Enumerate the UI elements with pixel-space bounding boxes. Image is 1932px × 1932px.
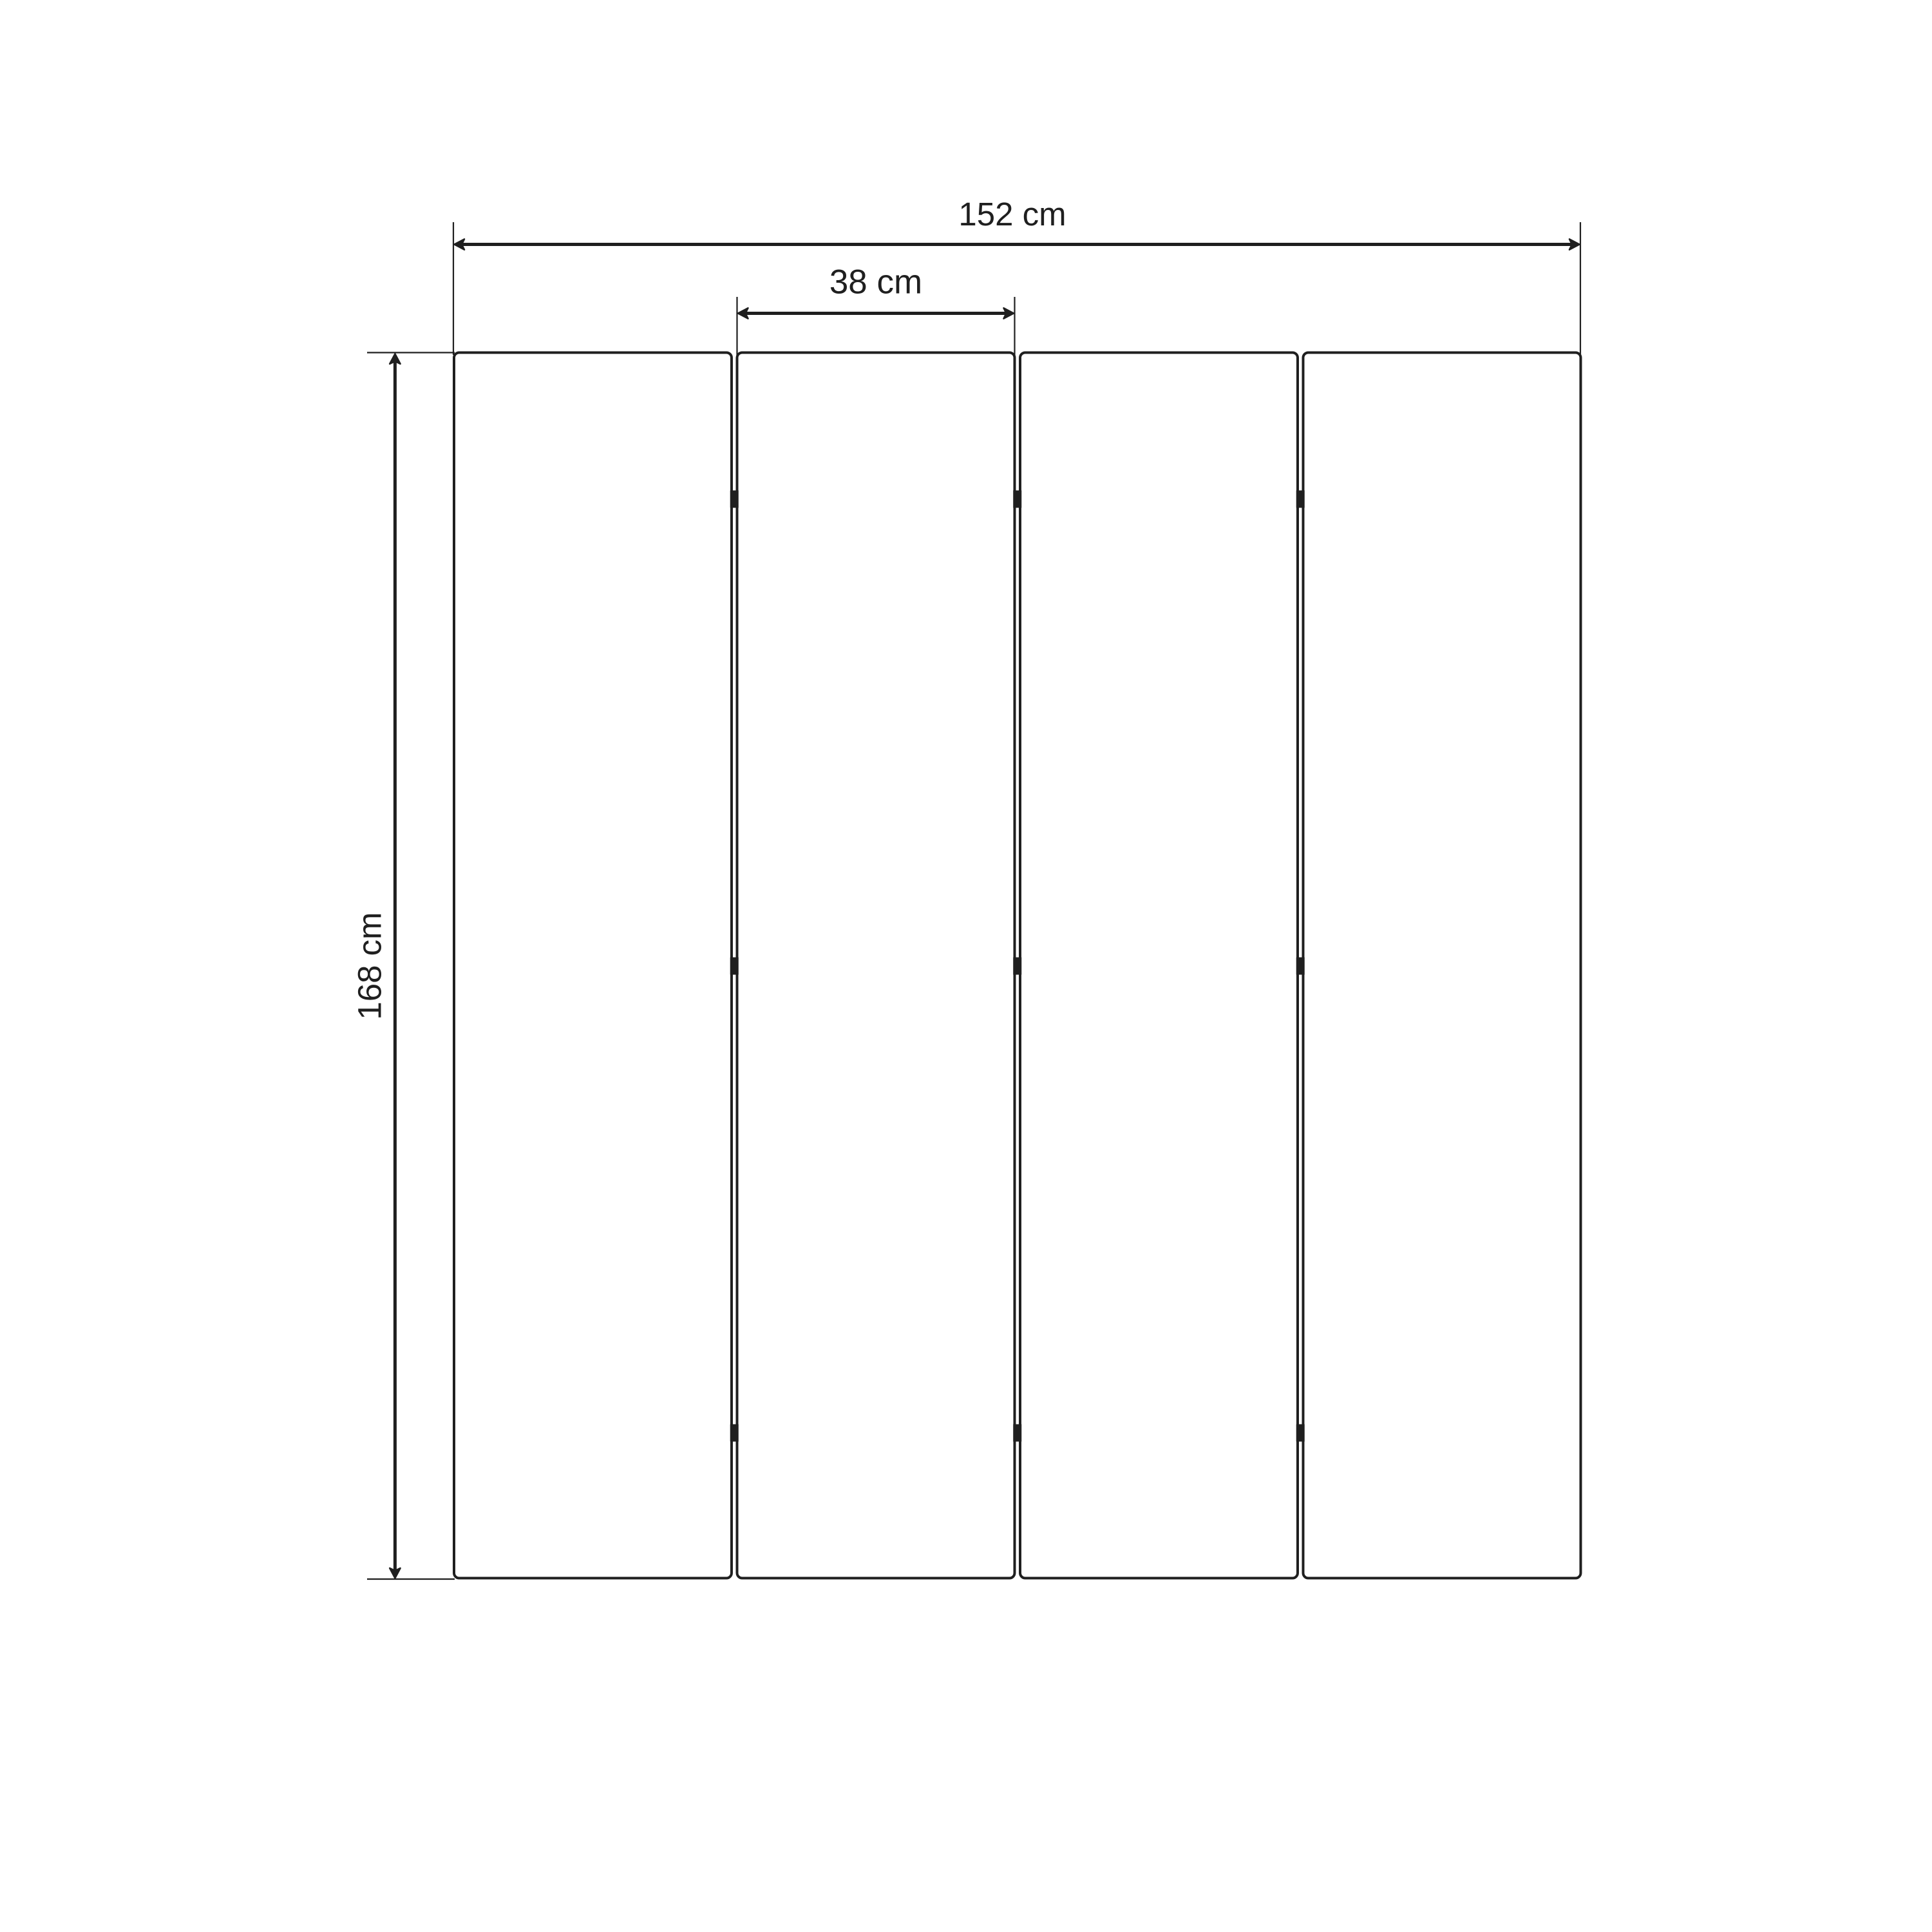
svg-text:38 cm: 38 cm [829, 263, 922, 301]
svg-text:168 cm: 168 cm [352, 912, 388, 1019]
svg-text:152 cm: 152 cm [958, 196, 1066, 232]
